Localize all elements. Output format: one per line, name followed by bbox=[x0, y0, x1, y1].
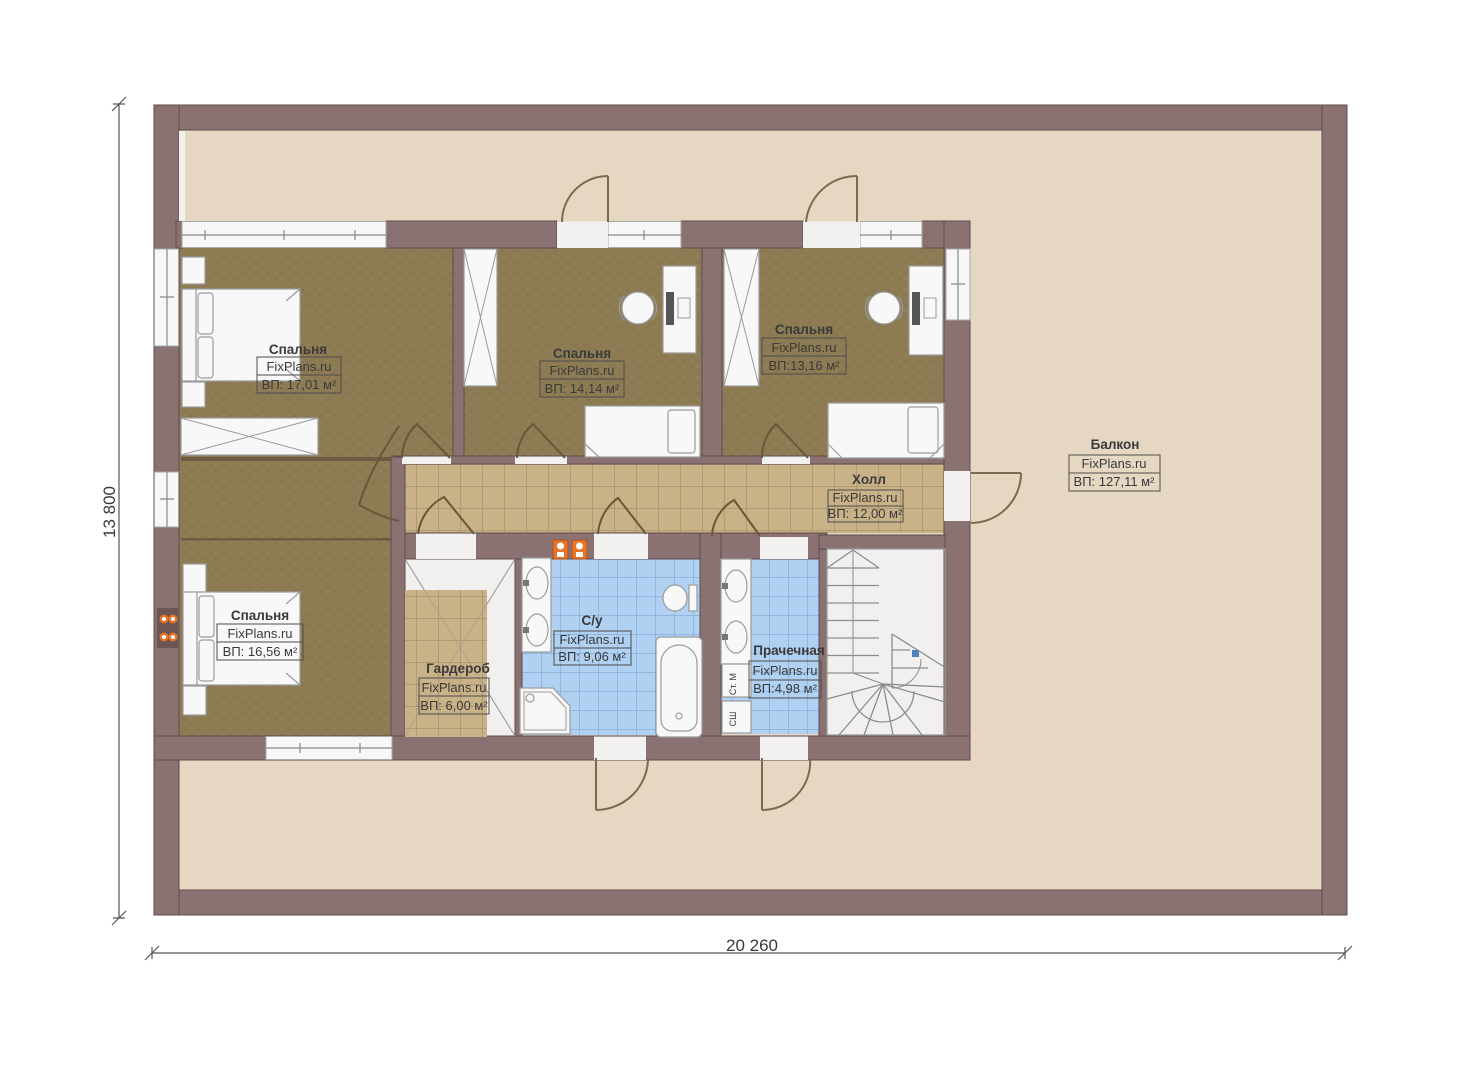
svg-text:ВП: 16,56 м²: ВП: 16,56 м² bbox=[223, 644, 298, 659]
svg-text:FixPlans.ru: FixPlans.ru bbox=[559, 632, 624, 647]
svg-text:FixPlans.ru: FixPlans.ru bbox=[227, 626, 292, 641]
svg-text:Холл: Холл bbox=[852, 472, 886, 487]
svg-text:Спальня: Спальня bbox=[553, 346, 611, 361]
svg-text:FixPlans.ru: FixPlans.ru bbox=[421, 680, 486, 695]
svg-text:FixPlans.ru: FixPlans.ru bbox=[752, 663, 817, 678]
svg-text:С/у: С/у bbox=[581, 613, 603, 628]
svg-text:20 260: 20 260 bbox=[726, 936, 778, 955]
svg-text:ВП:13,16 м²: ВП:13,16 м² bbox=[768, 358, 840, 373]
svg-text:Ст. М: Ст. М bbox=[728, 673, 738, 695]
svg-text:ВП: 127,11 м²: ВП: 127,11 м² bbox=[1074, 474, 1156, 489]
svg-text:Прачечная: Прачечная bbox=[753, 643, 825, 658]
svg-text:FixPlans.ru: FixPlans.ru bbox=[771, 340, 836, 355]
svg-text:Спальня: Спальня bbox=[269, 342, 327, 357]
svg-text:Спальня: Спальня bbox=[775, 322, 833, 337]
svg-text:13 800: 13 800 bbox=[100, 486, 119, 538]
svg-text:ВП: 6,00 м²: ВП: 6,00 м² bbox=[420, 698, 488, 713]
svg-text:Спальня: Спальня bbox=[231, 608, 289, 623]
svg-text:FixPlans.ru: FixPlans.ru bbox=[1081, 456, 1146, 471]
svg-text:ВП: 14,14 м²: ВП: 14,14 м² bbox=[545, 381, 620, 396]
svg-text:ВП: 12,00 м²: ВП: 12,00 м² bbox=[828, 506, 903, 521]
svg-text:Балкон: Балкон bbox=[1091, 437, 1140, 452]
svg-text:СШ: СШ bbox=[728, 712, 738, 727]
svg-text:ВП: 9,06 м²: ВП: 9,06 м² bbox=[558, 649, 626, 664]
svg-text:FixPlans.ru: FixPlans.ru bbox=[549, 363, 614, 378]
svg-text:ВП:4,98 м²: ВП:4,98 м² bbox=[753, 681, 817, 696]
svg-text:ВП: 17,01 м²: ВП: 17,01 м² bbox=[262, 377, 337, 392]
svg-text:FixPlans.ru: FixPlans.ru bbox=[266, 359, 331, 374]
svg-text:FixPlans.ru: FixPlans.ru bbox=[832, 490, 897, 505]
svg-text:Гардероб: Гардероб bbox=[426, 661, 490, 676]
